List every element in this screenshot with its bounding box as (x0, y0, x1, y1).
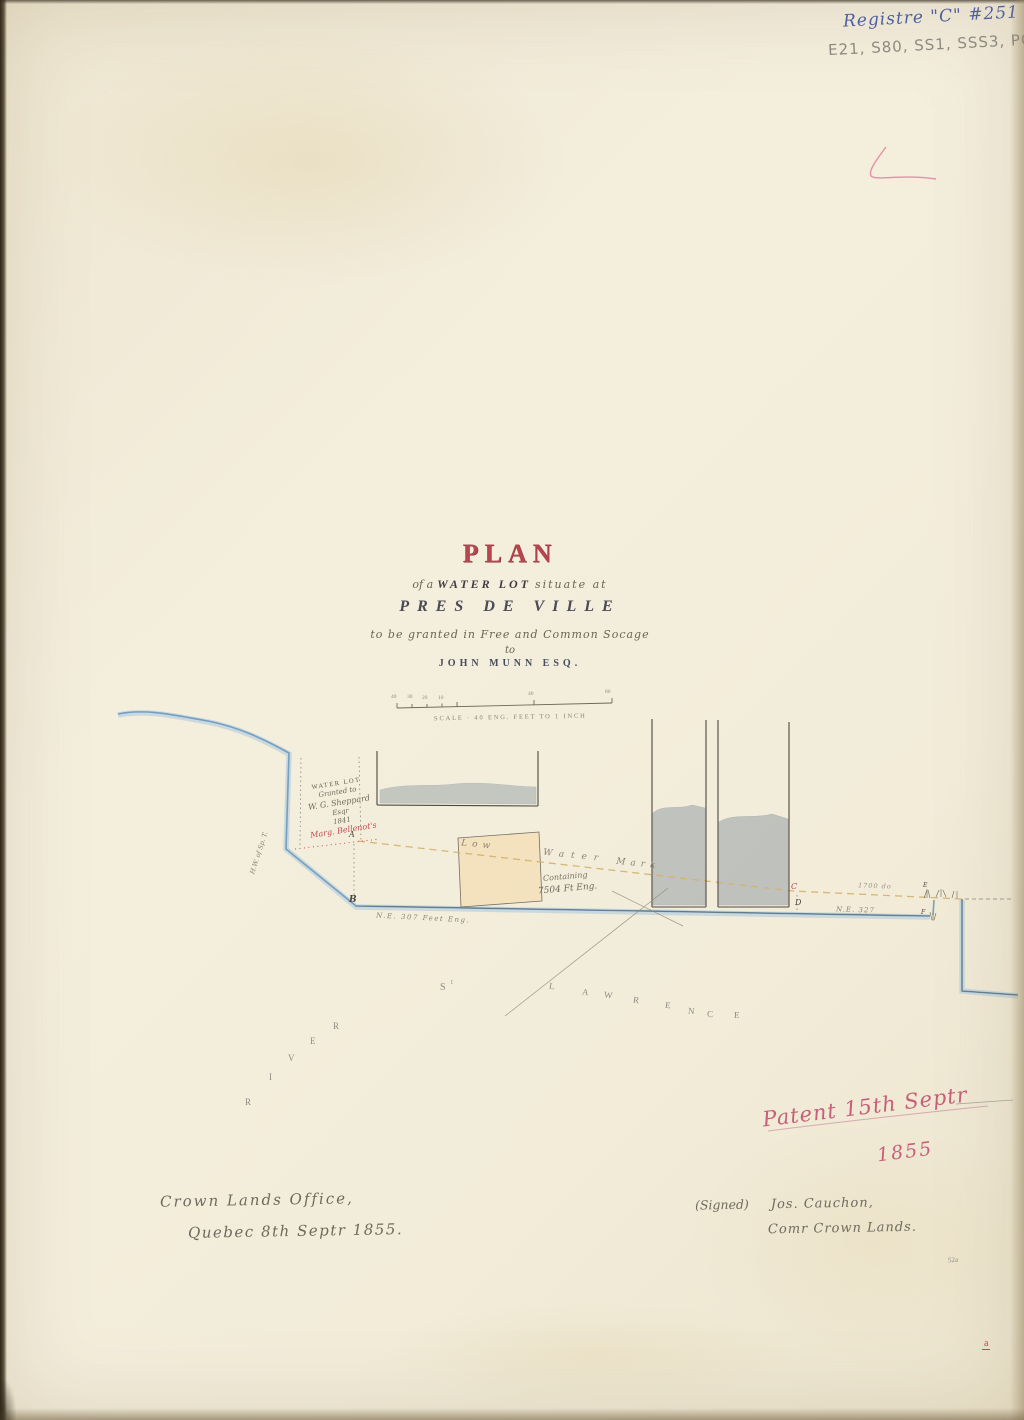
river-letter: R (333, 1022, 339, 1032)
scale-tick-label: 80 (605, 689, 611, 695)
dimension-label-right: N.E. 327 (836, 906, 875, 915)
signed-label: (Signed) (695, 1197, 749, 1213)
point-e: E (923, 883, 927, 890)
wharf-fill (653, 805, 705, 905)
title-to: to (495, 645, 525, 656)
scan-edge-top (0, 0, 1024, 4)
pink-check-mark (870, 147, 936, 179)
river-letter: N (688, 1007, 695, 1018)
scan-edge-left (0, 0, 7, 1420)
point-a: A (349, 831, 355, 840)
plate-number: 52a (948, 1257, 959, 1266)
river-letter: W (604, 991, 613, 1002)
river-letter: E (734, 1011, 740, 1021)
river-letter: I (269, 1073, 272, 1083)
river-letter: A (581, 988, 589, 999)
signature-line: (Signed) Jos. Cauchon, (695, 1193, 874, 1214)
scan-edge-bottom (0, 1408, 1024, 1420)
title-tenure-line: to be granted in Free and Common Socage (355, 629, 665, 641)
scan-corner-dark (0, 1378, 16, 1420)
scan-edge-right (1010, 0, 1024, 1420)
scale-tick-label: 20 (422, 695, 428, 701)
river-name-st: S (440, 982, 446, 993)
river-letter: E (664, 1001, 671, 1012)
office-line1: Crown Lands Office, (160, 1190, 354, 1210)
river-letter: E (310, 1037, 316, 1047)
title-place: PRES DE VILLE (375, 598, 645, 616)
point-f: F (921, 910, 925, 917)
title-line2-prefix: of a (412, 578, 433, 591)
title-line2: of a WATER LOT situate at (365, 575, 655, 593)
title-grantee: JOHN MUNN ESQ. (395, 658, 625, 669)
scale-tick-label: 10 (438, 695, 444, 701)
wharf-fill (380, 783, 536, 804)
commissioner-title: Comr Crown Lands. (768, 1221, 917, 1238)
wharf-fill (719, 814, 788, 905)
point-c: C (791, 883, 797, 892)
scale-tick-label: 40 (391, 694, 397, 700)
plan-title: PLAN (410, 540, 610, 569)
dimension-label-dashed: 1700 do (858, 882, 892, 890)
scale-bar (397, 698, 612, 708)
title-line2-main: WATER LOT (437, 577, 531, 591)
title-line2-suffix: situate at (535, 578, 608, 591)
scale-tick-label: 40 (528, 691, 534, 697)
river-name-st-sup: t (451, 979, 453, 987)
red-stamp-mark: a (982, 1338, 990, 1350)
river-letter: R (245, 1098, 251, 1108)
point-b: B (349, 896, 357, 906)
scale-tick-label: 30 (407, 694, 413, 700)
scanned-plan-page: Registre "C" #251 E21, S80, SS1, SSS3, P… (0, 0, 1024, 1420)
point-d: D (795, 899, 801, 908)
office-line2: Quebec 8th Septr 1855. (188, 1221, 403, 1241)
river-letter: V (288, 1054, 295, 1064)
commissioner-name: Jos. Cauchon, (771, 1195, 874, 1212)
river-letter: C (707, 1010, 714, 1020)
